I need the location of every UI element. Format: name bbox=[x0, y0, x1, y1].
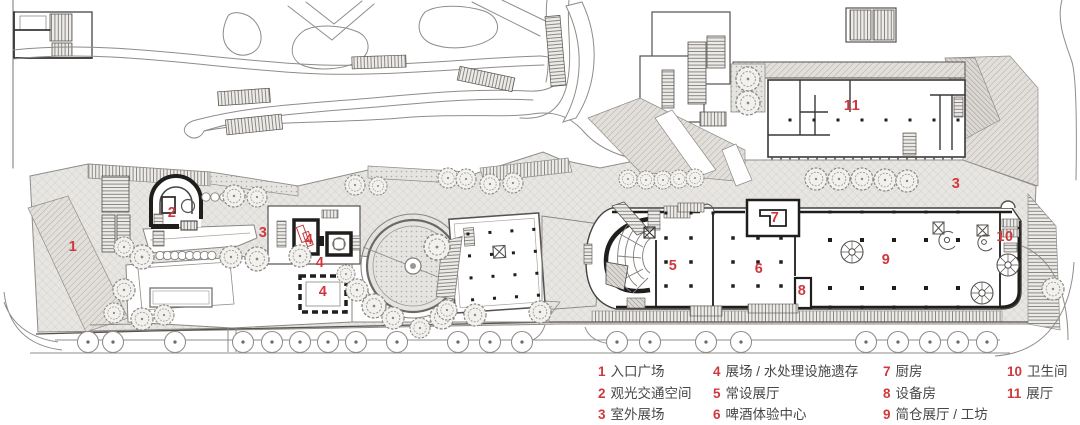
tree-icon bbox=[619, 170, 637, 188]
plan-label-4: 4 bbox=[319, 284, 328, 300]
street-tree-icon bbox=[165, 332, 186, 353]
legend-item-label: 常设展厅 bbox=[726, 386, 780, 401]
legend-item-label: 厨房 bbox=[896, 364, 923, 379]
legend-column-1: 1入口广场2观光交通空间3室外展场 bbox=[598, 361, 692, 425]
legend-item-label: 展场 / 水处理设施遗存 bbox=[726, 364, 859, 379]
column-dot bbox=[665, 212, 668, 215]
column-dot bbox=[909, 119, 912, 122]
shrub-dot bbox=[915, 157, 917, 159]
tree-icon bbox=[828, 168, 850, 190]
tree-icon bbox=[369, 177, 387, 195]
legend-item-number: 3 bbox=[598, 407, 606, 422]
column-dot bbox=[513, 273, 516, 276]
column-dot bbox=[892, 286, 896, 290]
column-dot bbox=[893, 211, 896, 214]
legend-item-label: 简仓展厅 / 工坊 bbox=[896, 407, 988, 422]
legend-item-1: 1入口广场 bbox=[598, 361, 692, 383]
legend-item-9: 9简仓展厅 / 工坊 bbox=[883, 404, 988, 425]
spiral-stair bbox=[997, 254, 1019, 276]
street-tree-icon bbox=[696, 332, 717, 353]
tree-icon bbox=[437, 300, 457, 320]
tree-icon bbox=[114, 237, 134, 257]
shrub-dot bbox=[780, 157, 782, 159]
column-dot bbox=[828, 238, 832, 242]
column-dot bbox=[957, 119, 960, 122]
canopy bbox=[733, 62, 965, 78]
column-dot bbox=[925, 211, 928, 214]
column-dot bbox=[689, 236, 693, 240]
legend-item-number: 8 bbox=[883, 386, 891, 401]
shrub-dot bbox=[924, 157, 926, 159]
spiral-stair bbox=[971, 282, 993, 304]
tree-icon bbox=[736, 91, 760, 115]
legend-item-8: 8设备房 bbox=[883, 383, 988, 405]
street-tree-icon bbox=[262, 332, 283, 353]
column-dot bbox=[861, 119, 864, 122]
street-tree-icon bbox=[346, 332, 367, 353]
legend-item-label: 设备房 bbox=[896, 386, 937, 401]
column-dot bbox=[933, 119, 936, 122]
tree-icon bbox=[104, 303, 124, 323]
tree-icon bbox=[289, 245, 311, 267]
column-dot bbox=[956, 286, 960, 290]
tree-icon bbox=[686, 169, 704, 187]
legend-item-number: 11 bbox=[1007, 386, 1021, 401]
column-dot bbox=[861, 211, 864, 214]
tree-icon bbox=[345, 175, 365, 195]
column-dot bbox=[829, 211, 832, 214]
shrub-dot bbox=[789, 157, 791, 159]
column-dot bbox=[537, 294, 540, 297]
tree-icon bbox=[637, 171, 655, 189]
shrub-dot bbox=[834, 157, 836, 159]
legend-item-number: 10 bbox=[1007, 364, 1022, 379]
column-dot bbox=[510, 229, 513, 232]
plan-label-9: 9 bbox=[882, 252, 891, 268]
tree-icon bbox=[410, 318, 430, 338]
legend-item-6: 6啤酒体验中心 bbox=[713, 404, 858, 425]
shrub-dot bbox=[897, 157, 899, 159]
tree-icon bbox=[113, 279, 135, 301]
legend-item-label: 展厅 bbox=[1026, 386, 1053, 401]
column-dot bbox=[892, 238, 896, 242]
column-dot bbox=[466, 232, 469, 235]
column-dot bbox=[731, 236, 735, 240]
column-dot bbox=[893, 306, 896, 309]
tree-icon bbox=[874, 169, 896, 191]
tree-icon bbox=[654, 171, 672, 189]
street-tree-icon bbox=[318, 332, 339, 353]
tree-icon bbox=[438, 168, 458, 188]
column-dot bbox=[813, 119, 816, 122]
tree-icon bbox=[480, 174, 500, 194]
plan-label-3: 3 bbox=[952, 176, 961, 192]
column-dot bbox=[837, 119, 840, 122]
plan-label-4: 4 bbox=[305, 232, 314, 248]
shrub-dot bbox=[852, 157, 854, 159]
shrub-dot bbox=[861, 157, 863, 159]
plan-label-1: 1 bbox=[69, 239, 78, 255]
legend-item-label: 啤酒体验中心 bbox=[726, 407, 807, 422]
corner-building bbox=[14, 12, 92, 58]
plan-label-6: 6 bbox=[755, 261, 764, 277]
column-dot bbox=[829, 306, 832, 309]
shrub-dot bbox=[906, 157, 908, 159]
column-dot bbox=[924, 238, 928, 242]
bollard-icon bbox=[208, 251, 216, 259]
column-dot bbox=[860, 286, 864, 290]
column-dot bbox=[779, 284, 783, 288]
tree-icon bbox=[456, 169, 476, 189]
column-dot bbox=[756, 284, 760, 288]
street-tree-icon bbox=[977, 332, 998, 353]
legend-item-label: 卫生间 bbox=[1027, 364, 1068, 379]
legend-item-4: 4展场 / 水处理设施遗存 bbox=[713, 361, 858, 383]
legend-item-label: 观光交通空间 bbox=[611, 386, 692, 401]
shrub-dot bbox=[951, 157, 953, 159]
column-dot bbox=[468, 254, 471, 257]
tree-icon bbox=[131, 308, 153, 330]
column-dot bbox=[490, 253, 493, 256]
legend-item-2: 2观光交通空间 bbox=[598, 383, 692, 405]
street-tree-icon bbox=[78, 332, 99, 353]
plan-label-7: 7 bbox=[771, 210, 780, 226]
column-dot bbox=[535, 272, 538, 275]
column-dot bbox=[512, 251, 515, 254]
shrub-dot bbox=[807, 157, 809, 159]
plan-label-5: 5 bbox=[669, 258, 678, 274]
column-dot bbox=[664, 236, 668, 240]
tree-icon bbox=[736, 67, 760, 91]
column-dot bbox=[756, 236, 760, 240]
street-tree-icon bbox=[512, 332, 533, 353]
shrub-dot bbox=[771, 157, 773, 159]
street-tree-icon bbox=[856, 332, 877, 353]
column-dot bbox=[488, 231, 491, 234]
legend-item-10: 10卫生间 bbox=[1007, 361, 1068, 383]
tree-icon bbox=[382, 307, 404, 329]
legend-item-number: 4 bbox=[713, 364, 721, 379]
shrub-dot bbox=[870, 157, 872, 159]
street-tree-icon bbox=[731, 332, 752, 353]
column-dot bbox=[957, 306, 960, 309]
legend-item-label: 室外展场 bbox=[611, 407, 665, 422]
legend-item-number: 5 bbox=[713, 386, 721, 401]
column-dot bbox=[664, 284, 668, 288]
column-dot bbox=[664, 260, 668, 264]
column-dot bbox=[689, 284, 693, 288]
column-dot bbox=[925, 306, 928, 309]
column-dot bbox=[779, 236, 783, 240]
column-dot bbox=[828, 286, 832, 290]
legend-item-3: 3室外展场 bbox=[598, 404, 692, 425]
column-dot bbox=[956, 238, 960, 242]
legend-item-number: 6 bbox=[713, 407, 721, 422]
street-tree-icon bbox=[103, 332, 124, 353]
legend-item-number: 7 bbox=[883, 364, 891, 379]
tree-icon bbox=[464, 304, 486, 326]
column-dot bbox=[689, 260, 693, 264]
column-dot bbox=[779, 260, 783, 264]
shrub-dot bbox=[843, 157, 845, 159]
park-stairs bbox=[218, 15, 566, 134]
plan-label-2: 2 bbox=[168, 205, 177, 221]
plan-label-4: 4 bbox=[316, 255, 325, 271]
shrub-dot bbox=[825, 157, 827, 159]
site-plan-figure: 1234443567891011 1入口广场2观光交通空间3室外展场4展场 / … bbox=[0, 0, 1080, 425]
spiral-stair bbox=[841, 241, 863, 263]
column-dot bbox=[712, 212, 715, 215]
street-tree-icon bbox=[480, 332, 501, 353]
tree-icon bbox=[670, 170, 688, 188]
column-dot bbox=[789, 119, 792, 122]
tree-icon bbox=[220, 246, 242, 268]
tree-icon bbox=[851, 168, 873, 190]
street-tree-icon bbox=[888, 332, 909, 353]
tree-icon bbox=[424, 234, 450, 260]
street-tree-icon bbox=[640, 332, 661, 353]
shrub-dot bbox=[879, 157, 881, 159]
plan-label-10: 10 bbox=[996, 229, 1013, 245]
column-dot bbox=[957, 211, 960, 214]
tree-icon bbox=[247, 187, 267, 207]
column-dot bbox=[731, 284, 735, 288]
plan-label-3: 3 bbox=[259, 225, 268, 241]
legend-item-number: 9 bbox=[883, 407, 891, 422]
shrub-dot bbox=[888, 157, 890, 159]
tree-icon bbox=[896, 170, 918, 192]
column-dot bbox=[885, 119, 888, 122]
tree-icon bbox=[1042, 278, 1064, 300]
street-tree-icon bbox=[387, 332, 408, 353]
street-tree-icon bbox=[233, 332, 254, 353]
legend-column-3: 7厨房8设备房9简仓展厅 / 工坊 bbox=[883, 361, 988, 425]
shrub-dot bbox=[942, 157, 944, 159]
column-dot bbox=[532, 228, 535, 231]
tree-icon bbox=[503, 173, 523, 193]
site-boundary-right bbox=[1060, 0, 1076, 180]
legend-item-label: 入口广场 bbox=[611, 364, 665, 379]
column-dot bbox=[731, 260, 735, 264]
column-dot bbox=[861, 306, 864, 309]
corner-steps bbox=[1028, 194, 1060, 330]
legend-item-5: 5常设展厅 bbox=[713, 383, 858, 405]
legend-column-4: 10卫生间11展厅 bbox=[1007, 361, 1068, 404]
column-dot bbox=[924, 286, 928, 290]
legend-item-7: 7厨房 bbox=[883, 361, 988, 383]
street-tree-icon bbox=[948, 332, 969, 353]
plan-label-8: 8 bbox=[798, 283, 807, 299]
legend-item-11: 11展厅 bbox=[1007, 383, 1068, 405]
tree-icon bbox=[529, 301, 551, 323]
street-tree-icon bbox=[448, 332, 469, 353]
shrub-dot bbox=[798, 157, 800, 159]
legend-column-2: 4展场 / 水处理设施遗存5常设展厅6啤酒体验中心 bbox=[713, 361, 858, 425]
street-trees bbox=[78, 332, 998, 353]
column-dot bbox=[534, 250, 537, 253]
legend-item-number: 2 bbox=[598, 386, 606, 401]
column-dot bbox=[469, 276, 472, 279]
column-dot bbox=[493, 297, 496, 300]
column-dot bbox=[491, 275, 494, 278]
street-tree-icon bbox=[607, 332, 628, 353]
tree-icon bbox=[245, 247, 269, 271]
street-tree-icon bbox=[920, 332, 941, 353]
column-dot bbox=[690, 212, 693, 215]
plan-label-11: 11 bbox=[844, 98, 860, 114]
tree-icon bbox=[223, 185, 245, 207]
column-dot bbox=[860, 238, 864, 242]
tree-icon bbox=[805, 168, 827, 190]
column-dot bbox=[515, 295, 518, 298]
legend-item-number: 1 bbox=[598, 364, 606, 379]
column-dot bbox=[471, 298, 474, 301]
shrub-dot bbox=[816, 157, 818, 159]
shrub-dot bbox=[933, 157, 935, 159]
street-tree-icon bbox=[290, 332, 311, 353]
tree-icon bbox=[154, 305, 174, 325]
